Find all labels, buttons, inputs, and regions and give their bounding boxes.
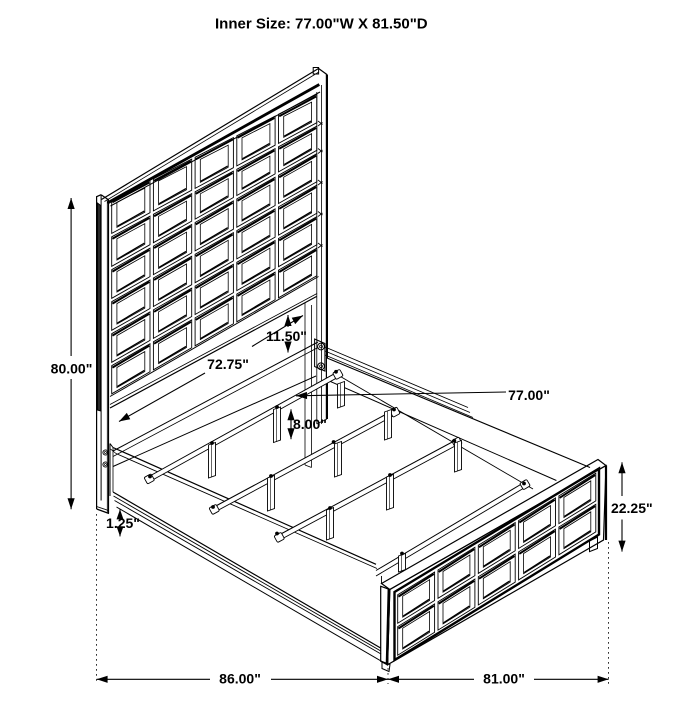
svg-text:22.25": 22.25" [611,500,653,516]
svg-text:77.00": 77.00" [508,387,550,403]
svg-text:Inner Size: 77.00"W X 81.50"D: Inner Size: 77.00"W X 81.50"D [215,16,428,33]
svg-text:11.50": 11.50" [266,328,307,344]
svg-text:81.00": 81.00" [483,671,525,687]
svg-text:72.75": 72.75" [207,356,249,372]
svg-text:86.00": 86.00" [219,671,261,687]
svg-text:1.25": 1.25" [106,515,140,531]
svg-text:80.00": 80.00" [51,361,93,377]
svg-text:8.00": 8.00" [293,416,327,432]
